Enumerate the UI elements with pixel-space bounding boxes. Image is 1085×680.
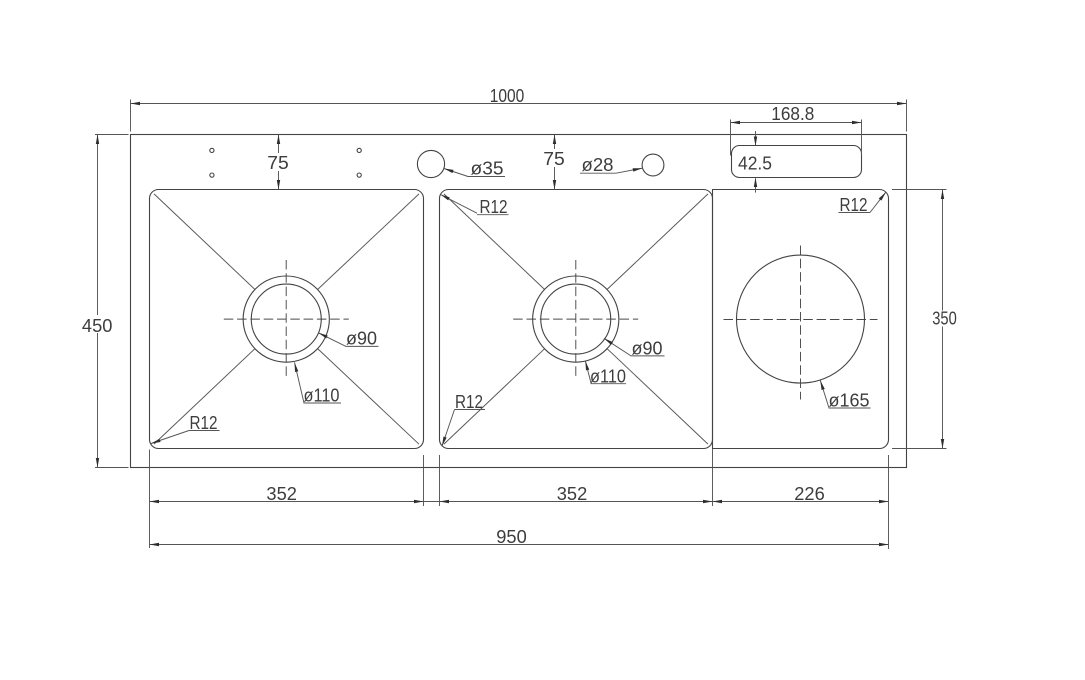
svg-text:352: 352: [557, 484, 588, 504]
svg-text:450: 450: [82, 316, 113, 336]
svg-text:ø28: ø28: [582, 155, 614, 175]
svg-text:R12: R12: [840, 195, 868, 215]
svg-text:R12: R12: [480, 197, 508, 217]
svg-text:350: 350: [932, 309, 957, 329]
svg-text:ø90: ø90: [632, 339, 663, 359]
svg-text:226: 226: [794, 484, 825, 504]
svg-text:75: 75: [267, 153, 289, 173]
svg-text:1000: 1000: [490, 86, 525, 106]
svg-text:42.5: 42.5: [738, 154, 772, 174]
svg-text:75: 75: [543, 149, 565, 169]
svg-text:ø110: ø110: [590, 367, 626, 387]
svg-text:R12: R12: [455, 392, 483, 412]
svg-text:ø35: ø35: [471, 159, 504, 179]
svg-text:ø165: ø165: [829, 391, 870, 411]
svg-text:ø110: ø110: [304, 386, 340, 406]
svg-text:168.8: 168.8: [771, 104, 814, 124]
svg-text:950: 950: [496, 527, 527, 547]
svg-text:ø90: ø90: [346, 329, 377, 349]
svg-text:352: 352: [266, 484, 297, 504]
svg-text:R12: R12: [190, 413, 218, 433]
